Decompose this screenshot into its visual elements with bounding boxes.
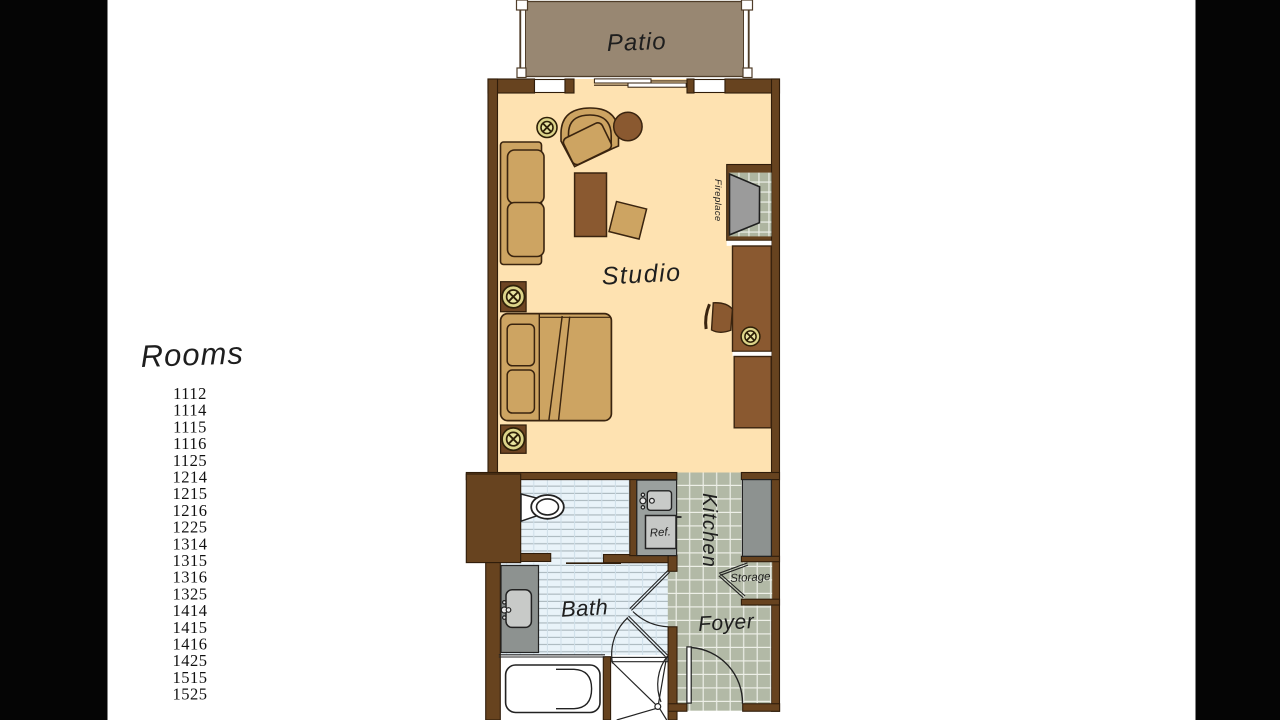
svg-text:Bath: Bath [560,594,609,621]
svg-text:Foyer: Foyer [698,610,756,636]
svg-text:Rooms: Rooms [140,335,244,374]
svg-text:Storage: Storage [730,571,771,585]
svg-text:Ref.: Ref. [649,526,671,539]
svg-text:Fireplace: Fireplace [712,179,723,222]
svg-text:Patio: Patio [606,28,667,57]
svg-text:1525: 1525 [173,685,208,704]
svg-text:Studio: Studio [601,258,682,290]
svg-text:Kitchen: Kitchen [698,493,720,568]
